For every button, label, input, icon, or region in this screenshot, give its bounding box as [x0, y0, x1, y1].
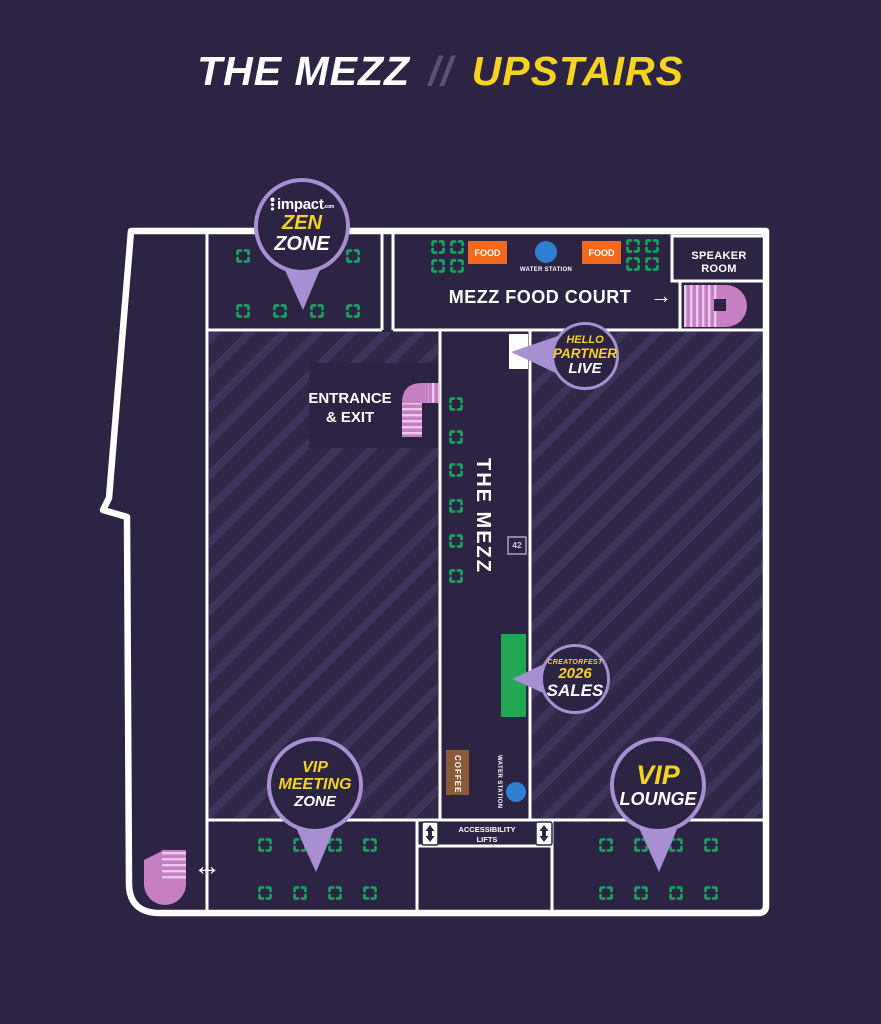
title-accent: UPSTAIRS	[472, 48, 684, 94]
table-marker-layer	[0, 0, 881, 1024]
table-marker	[293, 838, 307, 852]
zen-pin-line2: ZONE	[274, 234, 330, 255]
table-marker	[449, 463, 463, 477]
impact-logo-suffix: .com	[324, 205, 334, 210]
impact-logo-text: impact	[277, 197, 324, 213]
table-marker	[704, 886, 718, 900]
lounge-pin-line2: LOUNGE	[619, 790, 696, 809]
page-title: THE MEZZ // UPSTAIRS	[0, 48, 881, 95]
sales-pin-line3: SALES	[547, 682, 604, 700]
entrance-exit-label: ENTRANCE & EXIT	[300, 390, 400, 428]
zen-pin-line1: ZEN	[282, 213, 322, 234]
hello-pin-line3: LIVE	[568, 361, 601, 377]
table-marker	[363, 886, 377, 900]
table-marker	[634, 886, 648, 900]
title-main: THE MEZZ	[197, 48, 410, 94]
food-court-arrow: →	[650, 283, 672, 308]
meeting-pin-line2: MEETING	[279, 777, 352, 794]
corridor-label: THE MEZZ	[471, 458, 494, 574]
impact-logo: impact .com	[270, 197, 334, 213]
table-marker	[626, 239, 640, 253]
table-marker	[363, 838, 377, 852]
meeting-pin-line1: VIP	[302, 760, 328, 777]
meeting-pin-line3: ZONE	[294, 794, 336, 810]
table-marker	[258, 838, 272, 852]
speaker-room-label: SPEAKER ROOM	[672, 250, 766, 275]
food-stall-1-label: FOOD	[468, 248, 507, 258]
table-marker	[634, 838, 648, 852]
table-marker	[626, 257, 640, 271]
table-marker	[310, 304, 324, 318]
exchange-arrow: ↔	[193, 850, 221, 882]
table-marker	[449, 397, 463, 411]
table-marker	[450, 259, 464, 273]
table-marker	[346, 304, 360, 318]
creatorfest-sales-pin: CREATORFEST 2026 SALES	[540, 644, 610, 714]
table-marker	[450, 240, 464, 254]
table-marker	[645, 239, 659, 253]
table-marker	[236, 249, 250, 263]
hello-pin-line2: PARTNER	[553, 347, 617, 361]
table-marker	[449, 569, 463, 583]
table-marker	[704, 838, 718, 852]
table-marker	[449, 499, 463, 513]
table-marker	[431, 259, 445, 273]
table-marker	[258, 886, 272, 900]
table-marker	[669, 838, 683, 852]
vip-lounge-pin: VIP LOUNGE	[610, 737, 706, 833]
water-station-bottom-label: WATER STATION	[495, 755, 502, 809]
table-marker	[449, 534, 463, 548]
table-marker	[669, 886, 683, 900]
table-marker	[346, 249, 360, 263]
table-marker	[293, 886, 307, 900]
coffee-label: COFFEE	[453, 755, 462, 793]
table-marker	[236, 304, 250, 318]
table-marker	[328, 838, 342, 852]
lounge-pin-line1: VIP	[636, 761, 680, 789]
table-marker	[645, 257, 659, 271]
sales-pin-line2: 2026	[558, 666, 591, 682]
table-marker	[599, 838, 613, 852]
table-marker	[328, 886, 342, 900]
impact-logo-dots-icon	[270, 197, 275, 212]
title-separator: //	[422, 48, 459, 94]
accessibility-lifts-label: ACCESSIBILITY LIFTS	[440, 825, 534, 845]
table-marker	[273, 304, 287, 318]
table-marker	[449, 430, 463, 444]
hello-partner-live-pin: HELLO PARTNER LIVE	[551, 322, 619, 390]
zen-zone-pin: impact .com ZEN ZONE	[254, 178, 350, 274]
vip-meeting-zone-pin: VIP MEETING ZONE	[267, 737, 363, 833]
water-station-top-label: WATER STATION	[506, 267, 586, 274]
table-marker	[599, 886, 613, 900]
food-stall-2-label: FOOD	[582, 248, 621, 258]
floor-plan-page: THE MEZZ // UPSTAIRS	[0, 0, 881, 1024]
food-court-label: MEZZ FOOD COURT	[430, 287, 650, 308]
table-marker	[431, 240, 445, 254]
booth-42-label: 42	[508, 541, 526, 551]
